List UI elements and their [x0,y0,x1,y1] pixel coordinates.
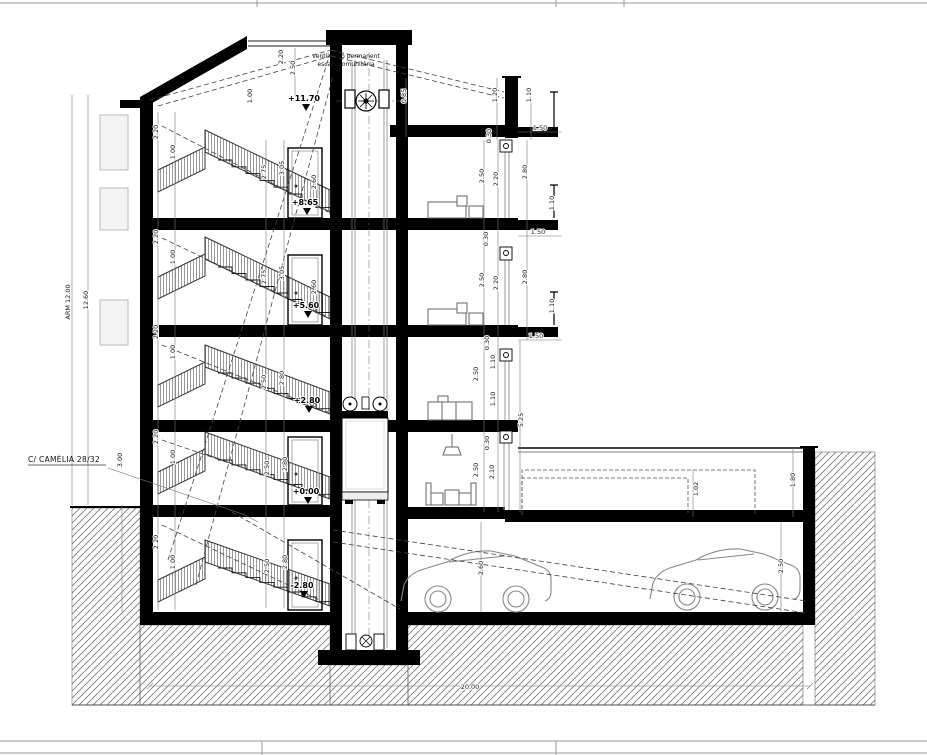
dim-label: 2.20 [152,535,160,549]
dim-label: 1.02 [692,482,700,496]
dim-label: 2.60 [310,175,318,189]
dim-label: 2.20 [152,325,160,339]
ventilation-note-line1: ventil·lació permanent [312,53,380,60]
dim-label: 2.50 [777,559,785,573]
level-triangle [304,311,312,318]
dim-label: 1.00 [169,555,177,569]
level-triangle [302,104,310,111]
dim-label: 2.20 [152,430,160,444]
dim-label: 2.50 [478,273,486,287]
dim-label: 2.50 [472,463,480,477]
structure-walls-slabs [120,30,818,665]
dimension-labels: ARM 12.0012.603.002.502.201.000.852.202.… [64,50,797,691]
dim-label: 20.00 [461,683,480,691]
dim-label: 1.00 [169,450,177,464]
dim-label: 2.50 [263,559,271,573]
dim-label: 2.80 [278,371,286,385]
building-section-drawing: ARM 12.0012.603.002.502.201.000.852.202.… [0,0,927,755]
dim-label: 2.75 [260,270,268,284]
dim-label: 2.10 [488,465,496,479]
dim-label: 12.60 [82,291,90,310]
dim-label: 2.80 [281,555,289,569]
ground-floor-lamp-chairs [426,434,476,505]
dim-label: 2.60 [477,561,485,575]
dim-label: 1.00 [169,345,177,359]
level-label: +0.00 [293,487,320,496]
bed-floor4 [428,196,483,218]
level-label: +5.60 [293,301,320,310]
level-label: +2.80 [294,396,321,405]
dim-label: 2.20 [492,276,500,290]
dim-label: 0.30 [483,436,491,450]
dim-label: 2.20 [277,50,285,64]
dim-label: 2.20 [152,230,160,244]
dim-label: 0.30 [483,336,491,350]
dim-label: 1.50 [531,228,545,236]
bed-floor3 [428,303,483,325]
dim-label: 1.10 [548,196,556,210]
level-label: -2.80 [290,581,313,590]
dim-label: 1.00 [169,250,177,264]
elevator-cab [342,397,388,504]
dim-label: 2.60 [310,280,318,294]
level-triangle [304,497,312,504]
dim-label: 3.00 [116,453,124,467]
dim-label: 1.50 [529,332,543,340]
garage-cars [401,549,800,612]
dim-label: 2.50 [263,461,271,475]
dim-label: 1.00 [246,89,254,103]
dim-label: 2.20 [492,172,500,186]
dim-label: 5.25 [517,413,525,427]
furniture [426,196,483,505]
dim-label: 1.50 [533,124,547,132]
dim-label: 3.05 [278,161,286,175]
level-label: +8.65 [292,198,319,207]
left-facade-windows [100,115,128,345]
dim-label: 2.50 [289,61,297,75]
dim-label: 1.00 [169,145,177,159]
drawing-sheet: ARM 12.0012.603.002.502.201.000.852.202.… [0,0,927,755]
ventilation-note-line2: escala comunitària [318,61,375,68]
pit-buffers [346,634,384,650]
dim-label: 2.80 [281,457,289,471]
dim-label: 2.20 [152,125,160,139]
dim-label: 0.85 [400,89,408,103]
level-triangle [303,208,311,215]
dim-label: ARM 12.00 [64,284,72,319]
dim-label: 0.30 [482,232,490,246]
elevator-shaft [336,52,404,650]
dim-label: 2.50 [472,367,480,381]
dim-label: 0.30 [485,129,493,143]
dim-label: 2.75 [260,165,268,179]
street-label: C/ CAMÈLIA 28/32 [28,455,100,464]
dim-label: 1.10 [489,355,497,369]
dim-label: 1.10 [525,88,533,102]
elevator-machine-pulley [345,90,389,111]
level-triangle [305,406,313,413]
dim-label: 2.50 [478,169,486,183]
dim-label: 1.80 [789,473,797,487]
dim-label: 2.50 [260,375,268,389]
dim-label: 3.05 [278,266,286,280]
sideboard-floor2 [428,396,472,420]
dim-label: 1.20 [491,88,499,102]
level-label: +11.70 [288,94,320,103]
dim-label: 2.80 [521,165,529,179]
dim-label: 1.10 [548,299,556,313]
dim-label: 1.10 [489,392,497,406]
dim-label: 2.80 [521,270,529,284]
